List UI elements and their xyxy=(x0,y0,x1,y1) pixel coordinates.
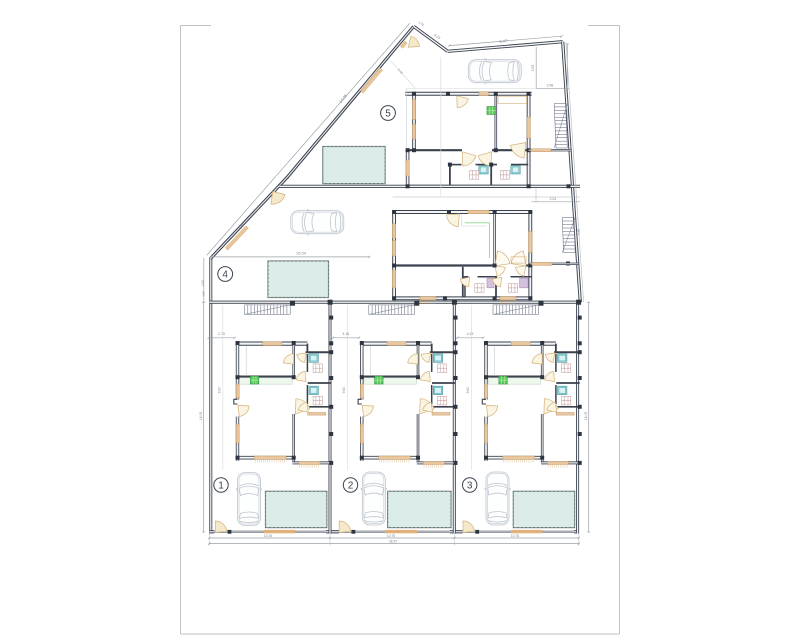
svg-text:10.75: 10.75 xyxy=(387,534,395,538)
svg-text:14.05: 14.05 xyxy=(199,412,203,421)
svg-text:15.04: 15.04 xyxy=(296,251,307,256)
svg-text:16.18: 16.18 xyxy=(565,109,570,118)
svg-text:1: 1 xyxy=(218,480,224,491)
svg-text:6.47: 6.47 xyxy=(499,38,508,44)
svg-text:2.04: 2.04 xyxy=(550,197,557,201)
svg-text:2: 2 xyxy=(348,480,354,491)
svg-text:9.60: 9.60 xyxy=(342,387,346,394)
svg-text:2.70: 2.70 xyxy=(218,332,225,336)
svg-text:2.98: 2.98 xyxy=(547,84,554,88)
svg-text:4: 4 xyxy=(222,269,228,280)
svg-text:9.60: 9.60 xyxy=(218,387,222,394)
svg-text:4.15: 4.15 xyxy=(467,332,474,336)
svg-text:2.08: 2.08 xyxy=(200,280,204,286)
svg-text:4.15: 4.15 xyxy=(342,332,349,336)
svg-text:10.75: 10.75 xyxy=(511,534,519,538)
svg-text:10.15: 10.15 xyxy=(264,534,272,538)
svg-text:5: 5 xyxy=(385,108,391,119)
svg-text:4.88: 4.88 xyxy=(577,228,581,235)
svg-text:14.05: 14.05 xyxy=(584,412,588,421)
svg-text:36.57: 36.57 xyxy=(389,539,397,543)
svg-text:9.60: 9.60 xyxy=(466,387,470,394)
svg-text:1.55: 1.55 xyxy=(202,291,206,297)
svg-text:3: 3 xyxy=(467,480,473,491)
svg-text:2.53: 2.53 xyxy=(531,65,535,72)
